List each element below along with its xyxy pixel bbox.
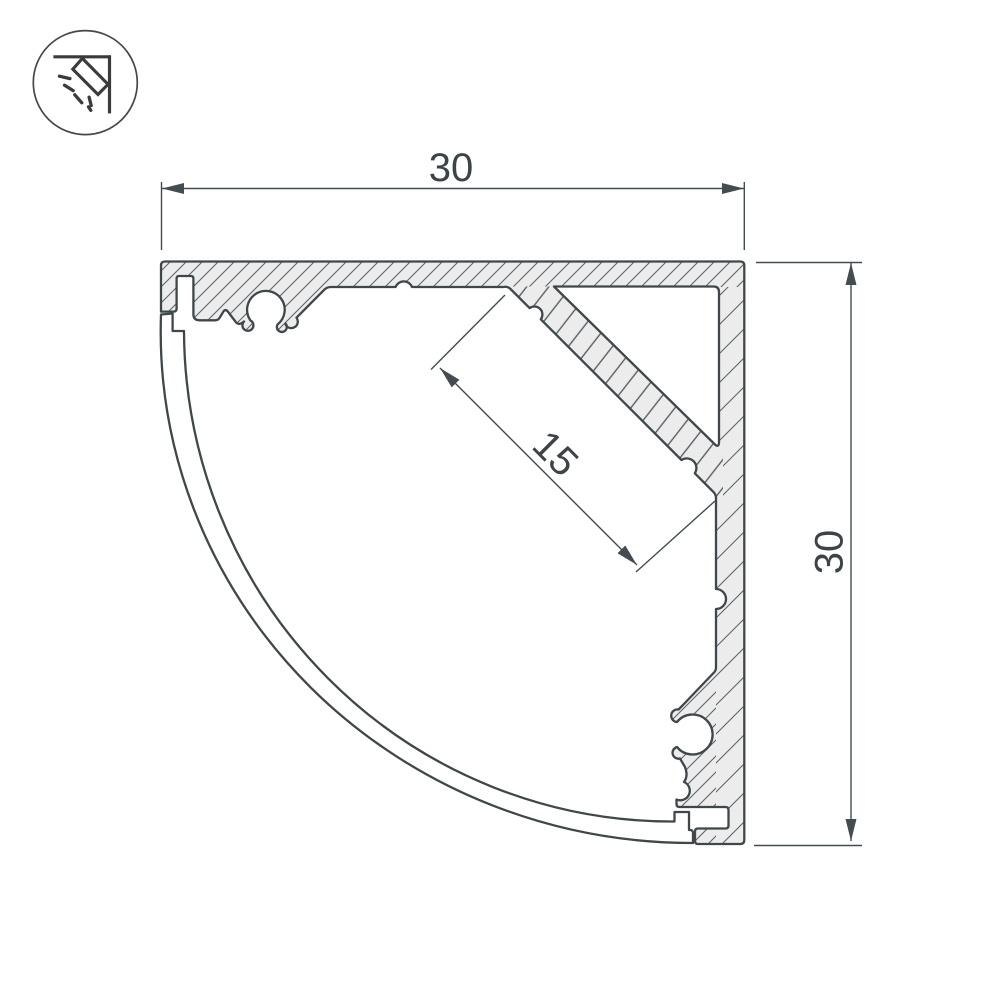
svg-text:15: 15 bbox=[524, 423, 587, 486]
svg-text:30: 30 bbox=[807, 530, 851, 575]
svg-text:30: 30 bbox=[429, 146, 474, 190]
